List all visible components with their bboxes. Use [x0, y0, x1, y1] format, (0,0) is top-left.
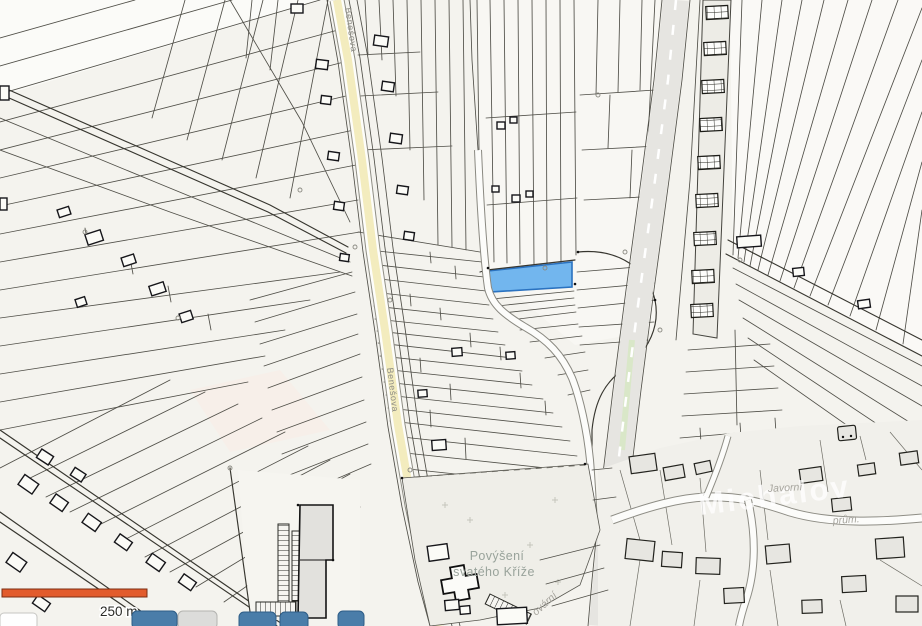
toolbar-button-2[interactable]	[239, 612, 276, 626]
church-label-line1: Povýšení	[470, 549, 525, 563]
toolbar-button-3[interactable]	[280, 612, 308, 626]
church-label-line2: svatého Kříže	[453, 565, 535, 579]
toolbar-button-4[interactable]	[338, 611, 364, 626]
street-label-small: Javorní	[767, 481, 804, 495]
toolbar-button-1[interactable]	[132, 611, 177, 626]
cadastral-map-viewport[interactable]: Michalov Povýšení svatého Kříže Benešova…	[0, 0, 922, 626]
toolbar-button-gray[interactable]	[178, 611, 217, 626]
map-canvas[interactable]: Michalov Povýšení svatého Kříže Benešova…	[0, 0, 922, 626]
street-label-abbrev: prům.	[831, 513, 860, 527]
toolbar-white-box[interactable]	[0, 613, 37, 626]
